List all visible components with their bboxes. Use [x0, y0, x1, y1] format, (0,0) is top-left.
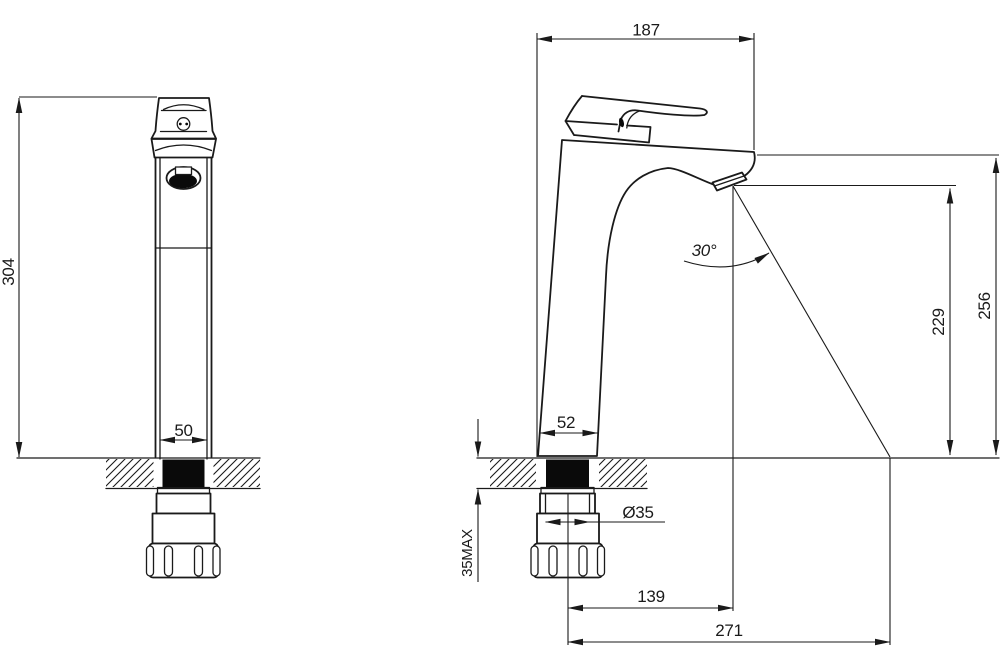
- countertop-hatch: [106, 459, 154, 487]
- dim-52-label: 52: [557, 413, 575, 432]
- side-countertop: [477, 458, 999, 489]
- nut-rib-slot: [579, 546, 587, 576]
- countertop-hatch: [599, 459, 647, 487]
- nut-rib-slot: [549, 546, 557, 576]
- front-body-outer-walls: [156, 158, 212, 458]
- nut-rib-slot: [598, 546, 605, 576]
- side-lever-left-edge: [566, 96, 583, 121]
- dim-139-label: 139: [637, 587, 664, 606]
- front-nut-knurl: [149, 544, 218, 578]
- dim-50-label: 50: [174, 421, 192, 440]
- nut-rib-slot: [531, 546, 538, 576]
- dim-30deg-label: 30°: [692, 241, 717, 260]
- front-countertop: [17, 458, 260, 489]
- front-shank: [157, 494, 211, 514]
- dim-dia35-label: Ø35: [622, 503, 653, 522]
- nut-rib-slot: [195, 546, 203, 576]
- countertop-hatch: [214, 459, 261, 487]
- dim-304-label: 304: [0, 258, 18, 285]
- countertop-hatch: [490, 459, 536, 487]
- side-handle-base: [566, 121, 651, 143]
- stream-angle-line: [733, 186, 890, 457]
- dim-35max-label: 35MAX: [459, 529, 476, 577]
- front-nut-body: [153, 514, 215, 544]
- faucet-dimension-drawing: 304 50: [0, 0, 1000, 667]
- dim-256-label: 256: [975, 292, 994, 319]
- dim-271-label: 271: [715, 621, 742, 640]
- front-screw-dot-right: [185, 123, 188, 126]
- technical-drawing-canvas: 304 50: [0, 0, 1000, 667]
- nut-rib-slot: [147, 546, 154, 576]
- nut-rib-slot: [213, 546, 220, 576]
- front-screw-dot-left: [179, 123, 182, 126]
- front-body-inner-walls: [160, 158, 207, 460]
- nut-rib-slot: [165, 546, 173, 576]
- side-mounting-gasket: [546, 460, 589, 488]
- front-view: [147, 98, 221, 578]
- front-spout-outlet-dark: [169, 174, 197, 188]
- front-aerator-notch: [176, 167, 192, 175]
- dim-229-label: 229: [929, 308, 948, 335]
- dim-187-label: 187: [632, 21, 659, 40]
- front-mounting-gasket: [163, 460, 205, 488]
